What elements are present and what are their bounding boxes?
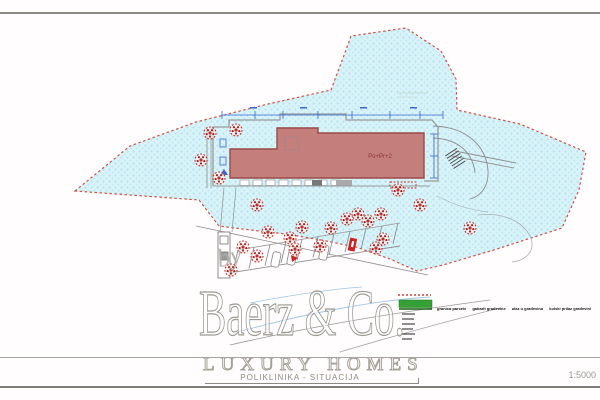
tree-symbol (362, 215, 374, 227)
tree-symbol (204, 127, 216, 139)
tree-symbol (213, 172, 225, 184)
legend-label-boundary: granica parcele (437, 306, 466, 311)
tree-symbol (296, 221, 308, 233)
tree-symbol (262, 226, 274, 238)
tree-symbol (325, 222, 337, 234)
tree-symbol (195, 154, 207, 166)
lower-strip-cells (240, 180, 352, 186)
watermark-by: by (214, 240, 244, 274)
frame-line-top (0, 12, 600, 14)
tree-symbol (464, 222, 476, 234)
legend-label-entrance: ulaz u građevinu (512, 306, 544, 311)
tree-symbol (251, 250, 263, 262)
frame-line-bottom-upper (0, 357, 600, 358)
parking-stall-divider (265, 245, 270, 266)
watermark-brand: Baerz & Co. (199, 281, 405, 347)
tree-symbol (370, 242, 382, 254)
legend-labels: granica parcele gabarit građevine ulaz u… (437, 306, 591, 311)
building-storeys-label: Po+Pr+2 (368, 154, 392, 160)
drawing-title: POLIKLINIKA - SITUACIJA (0, 373, 600, 382)
tree-symbol (284, 232, 296, 244)
legend-label-building: gabarit građevine (472, 306, 505, 311)
tree-symbol (289, 243, 301, 255)
frame-line-bottom-lower (0, 386, 600, 388)
parking-stall-divider (281, 242, 286, 263)
legend-label-access: kolski prilaz građevini (549, 306, 591, 311)
tree-symbol (314, 240, 326, 252)
drawing-sheet: Po+Pr+2 (0, 0, 600, 400)
tree-symbol (341, 213, 353, 225)
tree-symbol (414, 199, 426, 211)
tree-symbol (392, 184, 404, 196)
title-underline (205, 383, 419, 384)
scale-label: 1:5000 (568, 370, 596, 380)
tree-symbol (230, 124, 242, 136)
tree-symbol (375, 208, 387, 220)
tree-symbol (251, 199, 263, 211)
